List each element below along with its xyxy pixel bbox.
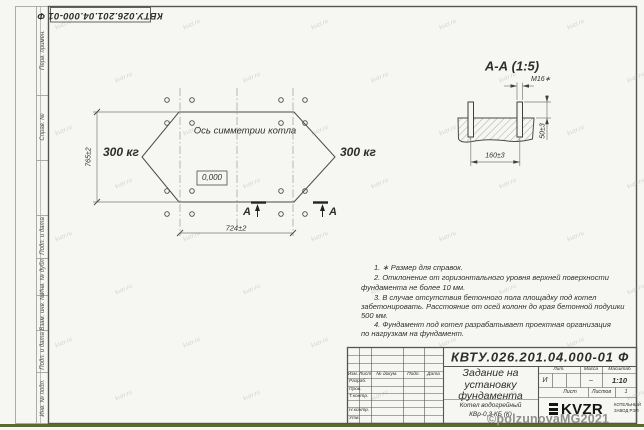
copyright-watermark: ©polzunovaMG2021	[487, 412, 609, 426]
lit-header: Лит.	[538, 368, 580, 373]
load-label-right: 300 кг	[340, 146, 376, 158]
note-line-4: 4. Фундамент под котел разрабатывает про…	[374, 320, 611, 329]
drawing-sheet: КВТУ.026.201.04.000-01 Ф Перв. примен. С…	[0, 0, 644, 430]
scale-value: 1:10	[602, 377, 637, 385]
elevation-mark: 0,000	[202, 174, 222, 182]
section-bolt-right	[517, 102, 523, 137]
note-line-2b: фундамента не более 10 мм.	[361, 283, 465, 292]
logo-caption-line-2: ЗАВОД РЭП	[614, 409, 639, 414]
bolt-thread-label: М16∗	[531, 76, 550, 83]
section-bolt-left	[468, 102, 474, 137]
dim-height-765: 765±2	[86, 147, 93, 166]
note-line-3c: 500 мм.	[361, 311, 388, 320]
title-block-doc-number: КВТУ.026.201.04.000-01 Ф	[451, 351, 629, 364]
row-label-tkontr: Т.контр.	[349, 395, 368, 400]
strip-label-sprav-no: Справ. №	[40, 113, 46, 140]
project-title-line-3: фундамента	[443, 391, 538, 402]
column-axes	[180, 88, 293, 236]
strip-label-inv-podl: Инв. № подл.	[40, 379, 46, 416]
project-title-line-2: установку	[443, 380, 538, 391]
project-title-line-1: Задание на	[443, 368, 538, 379]
mass-header: Масса	[580, 368, 602, 373]
sheets-value: 1	[615, 390, 637, 396]
plan-view	[93, 88, 335, 236]
section-cut-marks	[251, 203, 328, 218]
strip-label-vzam-inv: Взам. инв. №	[40, 293, 46, 330]
col-header-izm: Изм.	[347, 373, 359, 378]
col-header-list: Лист	[359, 373, 371, 378]
load-label-left: 300 кг	[103, 146, 139, 158]
note-line-1: 1. ∗ Размер для справок.	[374, 263, 463, 272]
section-title: А-А (1:5)	[485, 60, 539, 73]
row-label-utv: Утв.	[349, 417, 360, 422]
row-label-prov: Пров.	[349, 388, 362, 393]
col-header-doc: № докум.	[371, 373, 403, 378]
corner-stamp-doc-number: КВТУ.026.201.04.000-01 Ф	[37, 10, 163, 20]
note-line-3b: забетонировать. Расстояние от осей колон…	[361, 302, 624, 311]
product-name-line-1: Котел водогрейный	[443, 403, 538, 410]
lit-value: И	[538, 377, 552, 384]
section-letter-right: А	[329, 207, 337, 218]
note-line-4b: по нагрузкам на фундамент.	[361, 329, 464, 338]
scale-header: Масштаб	[602, 368, 637, 373]
row-label-nkontr: Н.контр.	[349, 409, 369, 414]
strip-label-podp-data-2: Подп. и дата	[40, 332, 46, 370]
strip-label-inv-dubl: Инв. № дубл.	[40, 258, 46, 295]
section-letter-left: А	[243, 207, 251, 218]
anchor-bolts	[165, 98, 308, 217]
sheet-label: Лист	[552, 390, 588, 395]
dim-bolt-spacing-160: 160±3	[485, 153, 504, 160]
symmetry-axis-label: Ось симметрии котла	[194, 126, 296, 136]
strip-label-podp-data-1: Подп. и дата	[40, 217, 46, 255]
strip-label-perv-primen: Перв. примен.	[40, 30, 46, 70]
row-label-razrab: Разраб.	[349, 380, 366, 385]
note-line-3: 3. В случае отсутствия бетонного пола пл…	[374, 293, 596, 302]
dim-protrusion-50: 50±3	[540, 123, 547, 139]
drawing-linework	[0, 0, 644, 430]
dim-width-724: 724±2	[226, 224, 247, 232]
col-header-data: Дата	[424, 373, 443, 378]
mass-value: –	[580, 377, 602, 384]
col-header-podp: Подп.	[403, 373, 424, 378]
sheets-label: Листов	[588, 390, 615, 395]
note-line-2: 2. Отклонение от горизонтального уровня …	[374, 273, 609, 282]
